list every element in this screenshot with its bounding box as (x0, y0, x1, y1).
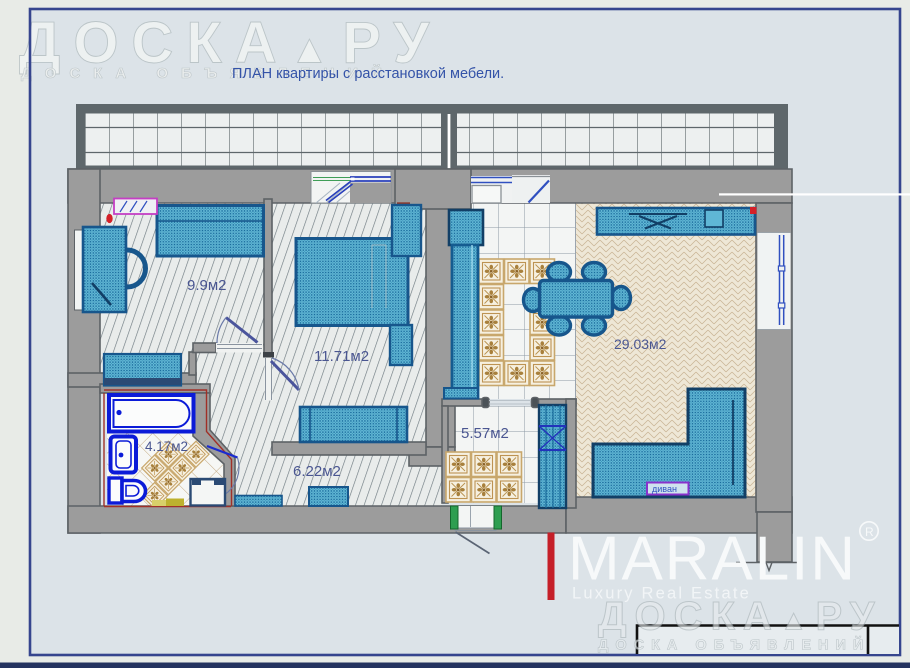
svg-text:R: R (865, 525, 874, 539)
svg-text:5.57м2: 5.57м2 (461, 425, 509, 442)
svg-text:MARALIN: MARALIN (568, 525, 857, 594)
svg-text:ДОСКА ОБЪЯВЛЕНИЙ: ДОСКА ОБЪЯВЛЕНИЙ (598, 636, 870, 654)
svg-text:11.71м2: 11.71м2 (314, 348, 369, 365)
svg-text:Luxury Real Estate: Luxury Real Estate (572, 585, 751, 603)
svg-text:29.03м2: 29.03м2 (614, 336, 667, 352)
svg-text:6.22м2: 6.22м2 (293, 463, 341, 480)
svg-text:ПЛАН квартиры с расстановкой м: ПЛАН квартиры с расстановкой мебели. (232, 66, 504, 82)
svg-text:9.9м2: 9.9м2 (187, 277, 227, 294)
svg-text:диван: диван (652, 484, 677, 494)
svg-text:4.17м2: 4.17м2 (145, 439, 188, 454)
